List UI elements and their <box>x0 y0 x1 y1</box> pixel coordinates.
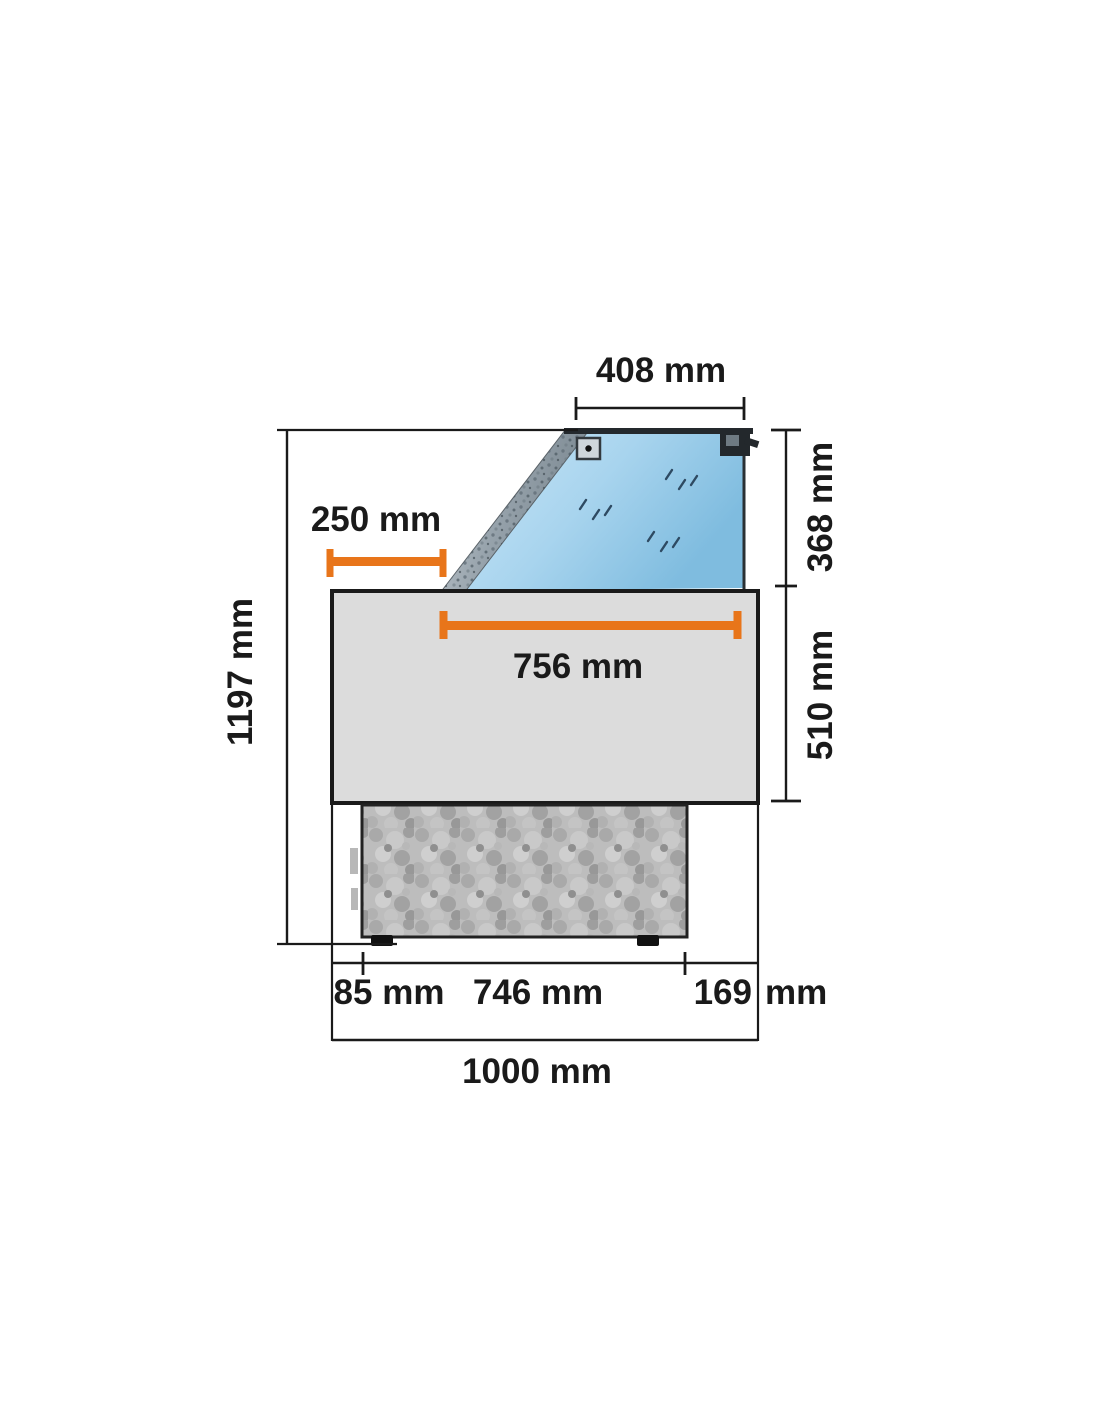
dim-label-base-width: 746 mm <box>473 973 603 1012</box>
dimension-diagram: 408 mm 368 mm 510 mm 1197 mm 250 mm <box>0 0 1100 1422</box>
dim-label-display-surface-width: 756 mm <box>513 647 643 686</box>
dim-label-top-inset: 250 mm <box>311 500 441 539</box>
hinge-right <box>720 429 759 456</box>
dim-label-total-height: 1197 mm <box>221 598 260 746</box>
hinge-left <box>577 438 600 459</box>
base-edge-marks <box>350 848 358 910</box>
dim-label-total-width: 1000 mm <box>462 1052 612 1091</box>
dim-right-heights: 368 mm 510 mm <box>771 430 840 801</box>
dim-top-inset: 250 mm <box>311 500 447 577</box>
base-plinth <box>362 805 687 937</box>
dim-label-rear-offset-value: 169 <box>694 973 752 1012</box>
dim-label-body-height: 510 mm <box>801 630 840 760</box>
dim-label-top-glass-width: 408 mm <box>596 351 726 390</box>
dim-label-glass-height: 368 mm <box>801 442 840 572</box>
foot-right <box>637 935 659 946</box>
dim-label-front-offset: 85 mm <box>334 973 445 1012</box>
dim-label-rear-offset-unit: mm <box>765 973 827 1012</box>
diagram-page: 408 mm 368 mm 510 mm 1197 mm 250 mm <box>0 0 1100 1422</box>
dim-top-glass-width: 408 mm <box>576 351 744 420</box>
